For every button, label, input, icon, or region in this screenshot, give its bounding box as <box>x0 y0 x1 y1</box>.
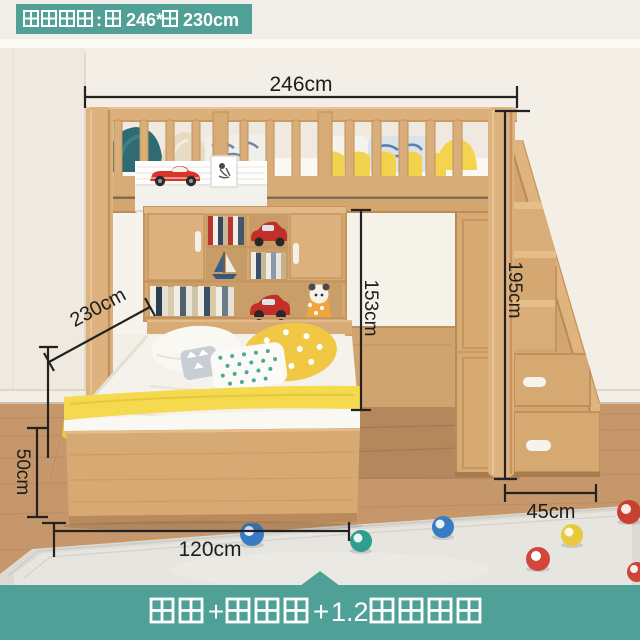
svg-text:1.2: 1.2 <box>331 597 369 627</box>
svg-text:+: + <box>313 596 329 627</box>
svg-text:120cm: 120cm <box>178 538 241 561</box>
svg-text:230cm: 230cm <box>183 10 239 30</box>
svg-text:50cm: 50cm <box>12 449 33 495</box>
svg-text:246cm: 246cm <box>269 73 332 96</box>
svg-text:195cm: 195cm <box>504 261 525 318</box>
svg-text:246*: 246* <box>126 10 163 30</box>
svg-text:45cm: 45cm <box>527 501 576 523</box>
svg-text:153cm: 153cm <box>360 279 381 336</box>
svg-text:+: + <box>208 596 224 627</box>
svg-text::: : <box>96 10 102 30</box>
